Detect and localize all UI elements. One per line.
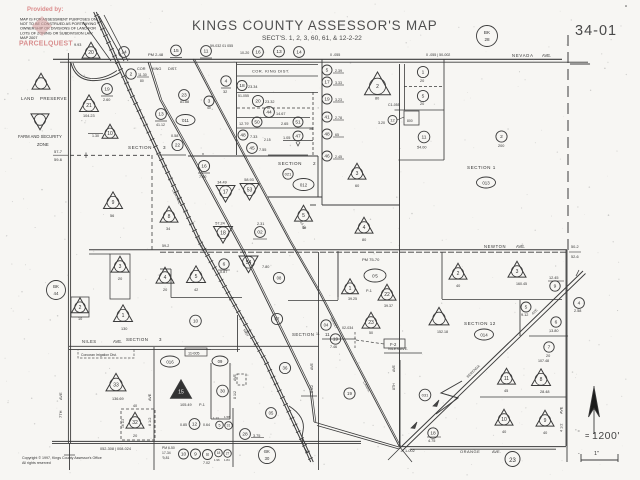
svg-text:'9-81: '9-81 — [162, 456, 170, 460]
svg-text:F-2: F-2 — [390, 342, 397, 347]
svg-text:AVE.: AVE. — [516, 244, 525, 249]
svg-text:08: 08 — [277, 276, 282, 281]
svg-text:AVE: AVE — [392, 364, 396, 372]
svg-text:47: 47 — [295, 134, 301, 140]
svg-text:34: 34 — [166, 227, 170, 231]
svg-text:19: 19 — [333, 337, 339, 343]
svg-text:07: 07 — [275, 317, 280, 322]
svg-text:11.30: 11.30 — [138, 73, 147, 77]
svg-text:2.45: 2.45 — [335, 155, 342, 159]
svg-text:59-032 01 055: 59-032 01 055 — [210, 44, 233, 48]
svg-text:11: 11 — [316, 332, 320, 336]
svg-text:SECTION: SECTION — [292, 332, 314, 337]
svg-text:1.13: 1.13 — [213, 416, 219, 420]
svg-text:800: 800 — [407, 119, 413, 123]
svg-text:81.88: 81.88 — [180, 100, 189, 104]
svg-text:NEWTON: NEWTON — [484, 244, 506, 249]
svg-text:48: 48 — [324, 132, 330, 138]
svg-text:BK: BK — [484, 30, 491, 35]
svg-text:23: 23 — [509, 458, 516, 464]
svg-text:152.18: 152.18 — [437, 330, 448, 334]
svg-text:19: 19 — [324, 97, 330, 103]
svg-text:39.37: 39.37 — [384, 304, 393, 308]
svg-text:0'5: 0'5 — [372, 274, 378, 279]
svg-text:021: 021 — [285, 171, 292, 176]
svg-text:32: 32 — [132, 420, 138, 426]
svg-text:11: 11 — [504, 376, 509, 382]
svg-text:23.34: 23.34 — [248, 85, 258, 89]
svg-text:AVE.: AVE. — [492, 449, 501, 454]
svg-text:65: 65 — [335, 133, 339, 137]
svg-text:1.96: 1.96 — [214, 458, 220, 462]
svg-text:40: 40 — [456, 284, 460, 288]
svg-text:20: 20 — [255, 99, 261, 105]
svg-text:50: 50 — [369, 331, 373, 335]
svg-text:48: 48 — [240, 133, 246, 139]
svg-text:13: 13 — [276, 49, 282, 55]
svg-text:42: 42 — [194, 288, 198, 292]
svg-text:Corcoran Irrigation Dist.: Corcoran Irrigation Dist. — [81, 353, 117, 357]
svg-text:052-308 | 008-024: 052-308 | 008-024 — [100, 447, 131, 451]
svg-text:PRESERVE: PRESERVE — [40, 96, 67, 101]
svg-text:9.12: 9.12 — [521, 313, 528, 317]
svg-text:57-7: 57-7 — [54, 149, 63, 154]
svg-text:ORANGE: ORANGE — [460, 449, 480, 454]
svg-text:8 1/2: 8 1/2 — [233, 391, 237, 399]
svg-text:AVE.: AVE. — [542, 53, 551, 58]
svg-text:4: 4 — [164, 275, 167, 281]
svg-text:40: 40 — [502, 430, 506, 434]
svg-text:KING: KING — [152, 67, 161, 71]
svg-text:58.93: 58.93 — [244, 178, 254, 182]
svg-text:All rights reserved: All rights reserved — [22, 461, 51, 465]
svg-text:1.30: 1.30 — [92, 134, 99, 138]
svg-text:20: 20 — [133, 434, 137, 438]
svg-text:10: 10 — [501, 417, 507, 423]
svg-text:33: 33 — [113, 382, 119, 388]
svg-text:17-34: 17-34 — [162, 451, 171, 455]
svg-text:12: 12 — [390, 117, 395, 122]
svg-text:45: 45 — [504, 389, 508, 393]
svg-text:1: 1 — [349, 286, 352, 292]
svg-text:41.12: 41.12 — [156, 123, 165, 127]
svg-text:9: 9 — [112, 200, 115, 206]
svg-text:12.45: 12.45 — [549, 276, 559, 280]
svg-text:3: 3 — [516, 269, 519, 275]
svg-text:4.75: 4.75 — [428, 439, 435, 443]
svg-text:COR. KING DIST.: COR. KING DIST. — [252, 69, 290, 74]
svg-text:" =: " = — [575, 428, 581, 433]
svg-text:1-002: 1-002 — [405, 449, 415, 453]
svg-text:0 -055 | 50-002: 0 -055 | 50-002 — [426, 53, 450, 57]
svg-text:=: = — [585, 431, 590, 440]
svg-text:46: 46 — [324, 154, 330, 160]
svg-text:160.45: 160.45 — [516, 282, 527, 286]
svg-text:30: 30 — [220, 389, 226, 394]
svg-text:0.87: 0.87 — [220, 270, 227, 274]
svg-text:AVE: AVE — [58, 392, 63, 400]
svg-text:5: 5 — [195, 274, 198, 280]
svg-text:Provided by:: Provided by: — [27, 7, 63, 13]
svg-text:3: 3 — [208, 99, 211, 105]
svg-text:02-034: 02-034 — [342, 326, 353, 330]
svg-text:3: 3 — [163, 145, 166, 150]
svg-text:14: 14 — [121, 50, 127, 56]
svg-text:SECTION 1: SECTION 1 — [467, 165, 496, 170]
svg-text:2: 2 — [79, 305, 82, 311]
svg-text:5: 5 — [422, 94, 425, 100]
svg-text:18: 18 — [220, 231, 226, 237]
svg-text:10: 10 — [78, 317, 82, 321]
svg-text:3.20: 3.20 — [378, 121, 385, 125]
svg-text:3.23: 3.23 — [335, 98, 342, 102]
svg-text:18: 18 — [217, 451, 221, 455]
svg-text:012: 012 — [300, 183, 308, 188]
svg-text:1.84: 1.84 — [224, 458, 230, 462]
svg-text:11: 11 — [422, 135, 427, 141]
svg-text:31: 31 — [227, 424, 231, 428]
svg-text:MAP 2007: MAP 2007 — [20, 36, 37, 40]
svg-text:15: 15 — [178, 389, 184, 395]
svg-text:AVE.: AVE. — [113, 339, 122, 344]
svg-text:34-01: 34-01 — [575, 23, 617, 39]
svg-text:80: 80 — [362, 238, 366, 242]
svg-text:4: 4 — [578, 301, 581, 307]
svg-text:3: 3 — [119, 264, 122, 270]
svg-text:SECTION: SECTION — [128, 145, 152, 150]
svg-text:7TH: 7TH — [58, 410, 63, 418]
svg-text:59-2: 59-2 — [162, 244, 169, 248]
svg-text:9: 9 — [544, 418, 547, 424]
svg-text:7.02: 7.02 — [203, 461, 210, 465]
svg-text:20: 20 — [118, 277, 122, 281]
svg-text:59-6: 59-6 — [54, 157, 63, 162]
svg-text:7: 7 — [548, 345, 551, 351]
svg-text:6: 6 — [555, 320, 558, 326]
svg-text:02: 02 — [257, 230, 263, 236]
svg-text:SECTION: SECTION — [126, 337, 148, 342]
svg-text:10: 10 — [181, 452, 187, 458]
svg-text:19: 19 — [347, 391, 352, 396]
svg-text:AVE: AVE — [310, 362, 314, 370]
svg-text:7.50: 7.50 — [199, 175, 206, 179]
svg-text:09: 09 — [218, 359, 223, 364]
svg-text:0.64: 0.64 — [203, 423, 210, 427]
svg-text:11-005: 11-005 — [188, 352, 200, 356]
svg-text:130: 130 — [121, 327, 127, 331]
svg-text:DIST.: DIST. — [168, 67, 177, 71]
svg-text:44: 44 — [54, 291, 59, 296]
svg-text:105.49: 105.49 — [180, 403, 192, 407]
svg-text:51: 51 — [295, 120, 301, 126]
svg-text:Copyright © 1997, Kings County: Copyright © 1997, Kings County Assessor'… — [22, 456, 102, 460]
svg-text:17: 17 — [324, 80, 330, 86]
svg-text:136.69: 136.69 — [112, 397, 124, 401]
svg-text:15: 15 — [173, 48, 179, 54]
svg-text:P-1: P-1 — [199, 403, 205, 407]
svg-text:11: 11 — [204, 49, 209, 55]
svg-text:60: 60 — [355, 184, 359, 188]
svg-text:4: 4 — [225, 79, 228, 85]
svg-text:36: 36 — [283, 366, 288, 371]
svg-text:200: 200 — [498, 144, 504, 148]
svg-text:OWNERSHIP OR DIVISIONS OF LAND: OWNERSHIP OR DIVISIONS OF LAND FOR — [20, 27, 96, 31]
svg-text:23.32: 23.32 — [265, 100, 275, 104]
svg-text:23: 23 — [368, 320, 374, 326]
svg-text:54: 54 — [246, 260, 252, 266]
svg-text:8TH: 8TH — [392, 383, 396, 390]
svg-text:SECTION 12: SECTION 12 — [464, 321, 496, 326]
svg-text:4 1/2: 4 1/2 — [560, 424, 564, 432]
svg-text:12.79: 12.79 — [239, 122, 249, 126]
svg-text:3.33: 3.33 — [335, 81, 342, 85]
svg-text:13.80: 13.80 — [549, 329, 559, 333]
svg-text:016: 016 — [166, 360, 174, 365]
svg-text:20: 20 — [88, 50, 94, 56]
svg-text:2.65: 2.65 — [281, 122, 288, 126]
svg-text:2.78: 2.78 — [335, 116, 342, 120]
svg-text:011: 011 — [182, 118, 190, 123]
svg-text:39.25: 39.25 — [348, 297, 357, 301]
svg-text:1: 1 — [122, 313, 125, 319]
svg-text:22: 22 — [384, 292, 390, 298]
svg-text:18: 18 — [430, 431, 436, 437]
svg-text:2.39: 2.39 — [335, 69, 342, 73]
svg-text:2: 2 — [376, 84, 379, 90]
svg-text:51-055: 51-055 — [238, 94, 249, 98]
svg-text:20: 20 — [163, 288, 167, 292]
svg-text:5: 5 — [326, 68, 329, 74]
svg-text:104.23: 104.23 — [83, 114, 95, 118]
svg-text:2: 2 — [130, 72, 133, 78]
svg-text:13: 13 — [158, 112, 164, 118]
svg-text:013: 013 — [482, 181, 490, 186]
svg-text:NILES: NILES — [82, 339, 97, 344]
svg-text:8: 8 — [168, 214, 171, 220]
svg-text:30: 30 — [265, 456, 270, 461]
svg-text:C1-055: C1-055 — [388, 103, 400, 107]
svg-text:AVE: AVE — [233, 373, 237, 381]
svg-text:53: 53 — [247, 188, 253, 194]
svg-text:28.48: 28.48 — [540, 390, 550, 394]
svg-text:40: 40 — [543, 431, 547, 435]
svg-text:107.48: 107.48 — [538, 359, 549, 363]
svg-text:1.05: 1.05 — [283, 136, 290, 140]
svg-text:0.85: 0.85 — [180, 423, 187, 427]
svg-text:SECT'S. 1, 2, 3, 60, 61, & 12-: SECT'S. 1, 2, 3, 60, 61, & 12-2-22 — [262, 35, 362, 42]
svg-text:9: 9 — [554, 284, 557, 290]
svg-text:14.67: 14.67 — [276, 112, 286, 116]
svg-text:8: 8 — [206, 452, 209, 458]
svg-text:1.58: 1.58 — [224, 415, 230, 419]
svg-text:2: 2 — [457, 271, 460, 277]
svg-text:8 1/2: 8 1/2 — [310, 385, 314, 393]
svg-text:27: 27 — [226, 452, 230, 456]
svg-text:1200': 1200' — [592, 430, 620, 442]
svg-text:P-1: P-1 — [366, 289, 372, 293]
svg-text:2.31: 2.31 — [257, 222, 264, 226]
svg-text:5: 5 — [525, 305, 528, 311]
svg-text:COR: COR — [137, 67, 146, 71]
svg-text:x: x — [202, 151, 204, 156]
svg-text:50: 50 — [254, 120, 260, 126]
svg-text:0.58: 0.58 — [171, 134, 178, 138]
svg-text:40: 40 — [302, 226, 306, 230]
svg-text:4: 4 — [363, 225, 366, 231]
svg-text:ZONE: ZONE — [37, 142, 49, 147]
svg-text:1": 1" — [594, 451, 599, 457]
svg-text:2: 2 — [313, 161, 316, 166]
svg-text:80: 80 — [140, 79, 144, 83]
svg-text:19: 19 — [104, 87, 110, 93]
svg-text:PARCELQUEST: PARCELQUEST — [19, 41, 73, 48]
svg-text:LAND: LAND — [21, 96, 34, 101]
svg-text:2.60: 2.60 — [103, 98, 110, 102]
svg-text:031: 031 — [422, 392, 429, 397]
svg-text:32: 32 — [223, 90, 227, 94]
svg-text:NEVADA: NEVADA — [512, 53, 534, 58]
svg-text:40: 40 — [133, 404, 137, 408]
svg-text:FARM AND SECURITY: FARM AND SECURITY — [18, 134, 62, 139]
svg-text:28: 28 — [242, 432, 248, 438]
svg-text:LOTS OF ZONING OR SUBDIVISION: LOTS OF ZONING OR SUBDIVISION LAW — [20, 31, 93, 35]
svg-text:28: 28 — [484, 37, 490, 42]
svg-text:52-6: 52-6 — [571, 255, 579, 259]
svg-text:2: 2 — [500, 134, 503, 140]
svg-text:57.24: 57.24 — [215, 222, 225, 226]
svg-text:7.46: 7.46 — [330, 345, 337, 349]
svg-text:7.80: 7.80 — [262, 265, 269, 269]
svg-text:80: 80 — [375, 97, 379, 101]
svg-text:3: 3 — [356, 171, 359, 177]
svg-text:BK: BK — [53, 284, 59, 289]
svg-text:18: 18 — [239, 83, 245, 89]
svg-text:014: 014 — [480, 333, 488, 338]
svg-text:14: 14 — [296, 50, 302, 56]
svg-text:11: 11 — [325, 332, 330, 337]
svg-text:AVE: AVE — [148, 393, 152, 401]
svg-text:MAP IS FOR ASSESSMENT PURPOSES: MAP IS FOR ASSESSMENT PURPOSES ONLY — [20, 18, 101, 22]
svg-text:10: 10 — [107, 131, 113, 137]
svg-text:56: 56 — [110, 214, 114, 218]
svg-text:50-2: 50-2 — [571, 245, 579, 249]
svg-text:16 1/2: 16 1/2 — [121, 419, 125, 428]
svg-text:10: 10 — [193, 319, 199, 324]
svg-text:36: 36 — [309, 127, 313, 131]
svg-text:05: 05 — [269, 411, 274, 416]
svg-text:8: 8 — [540, 377, 543, 383]
svg-text:7.55: 7.55 — [259, 148, 266, 152]
svg-text:20: 20 — [420, 102, 424, 106]
svg-text:9.93: 9.93 — [74, 43, 81, 47]
svg-text:BK: BK — [264, 449, 270, 454]
svg-text:44: 44 — [266, 110, 272, 116]
svg-text:10-20: 10-20 — [240, 51, 249, 55]
svg-text:1: 1 — [422, 70, 425, 76]
svg-text:34.49: 34.49 — [217, 181, 227, 185]
svg-text:2.58: 2.58 — [574, 309, 581, 313]
svg-text:23: 23 — [181, 93, 187, 99]
svg-text:6: 6 — [223, 262, 226, 268]
svg-text:45: 45 — [249, 146, 255, 152]
svg-text:22: 22 — [175, 143, 181, 149]
svg-text:17: 17 — [223, 190, 229, 196]
svg-text:7.33: 7.33 — [250, 135, 257, 139]
svg-text:21: 21 — [86, 103, 92, 109]
svg-text:20: 20 — [420, 79, 424, 83]
svg-text:AVE: AVE — [560, 406, 564, 414]
svg-text:SECTION: SECTION — [278, 161, 302, 166]
svg-text:5: 5 — [302, 213, 305, 219]
svg-text:2.15: 2.15 — [264, 138, 271, 142]
svg-text:0 -055: 0 -055 — [330, 53, 340, 57]
svg-text:41: 41 — [324, 115, 330, 121]
svg-text:8 1/2: 8 1/2 — [148, 418, 152, 426]
svg-text:40: 40 — [207, 106, 211, 110]
svg-text:04: 04 — [324, 323, 329, 328]
svg-text:9: 9 — [194, 452, 197, 458]
svg-text:20: 20 — [546, 354, 550, 358]
svg-text:16: 16 — [201, 164, 207, 170]
svg-text:PM 2-48: PM 2-48 — [148, 52, 164, 57]
svg-text:12: 12 — [192, 422, 198, 428]
svg-text:PM 75-70: PM 75-70 — [362, 257, 380, 262]
svg-text:5: 5 — [219, 423, 221, 427]
svg-text:16: 16 — [255, 50, 261, 56]
